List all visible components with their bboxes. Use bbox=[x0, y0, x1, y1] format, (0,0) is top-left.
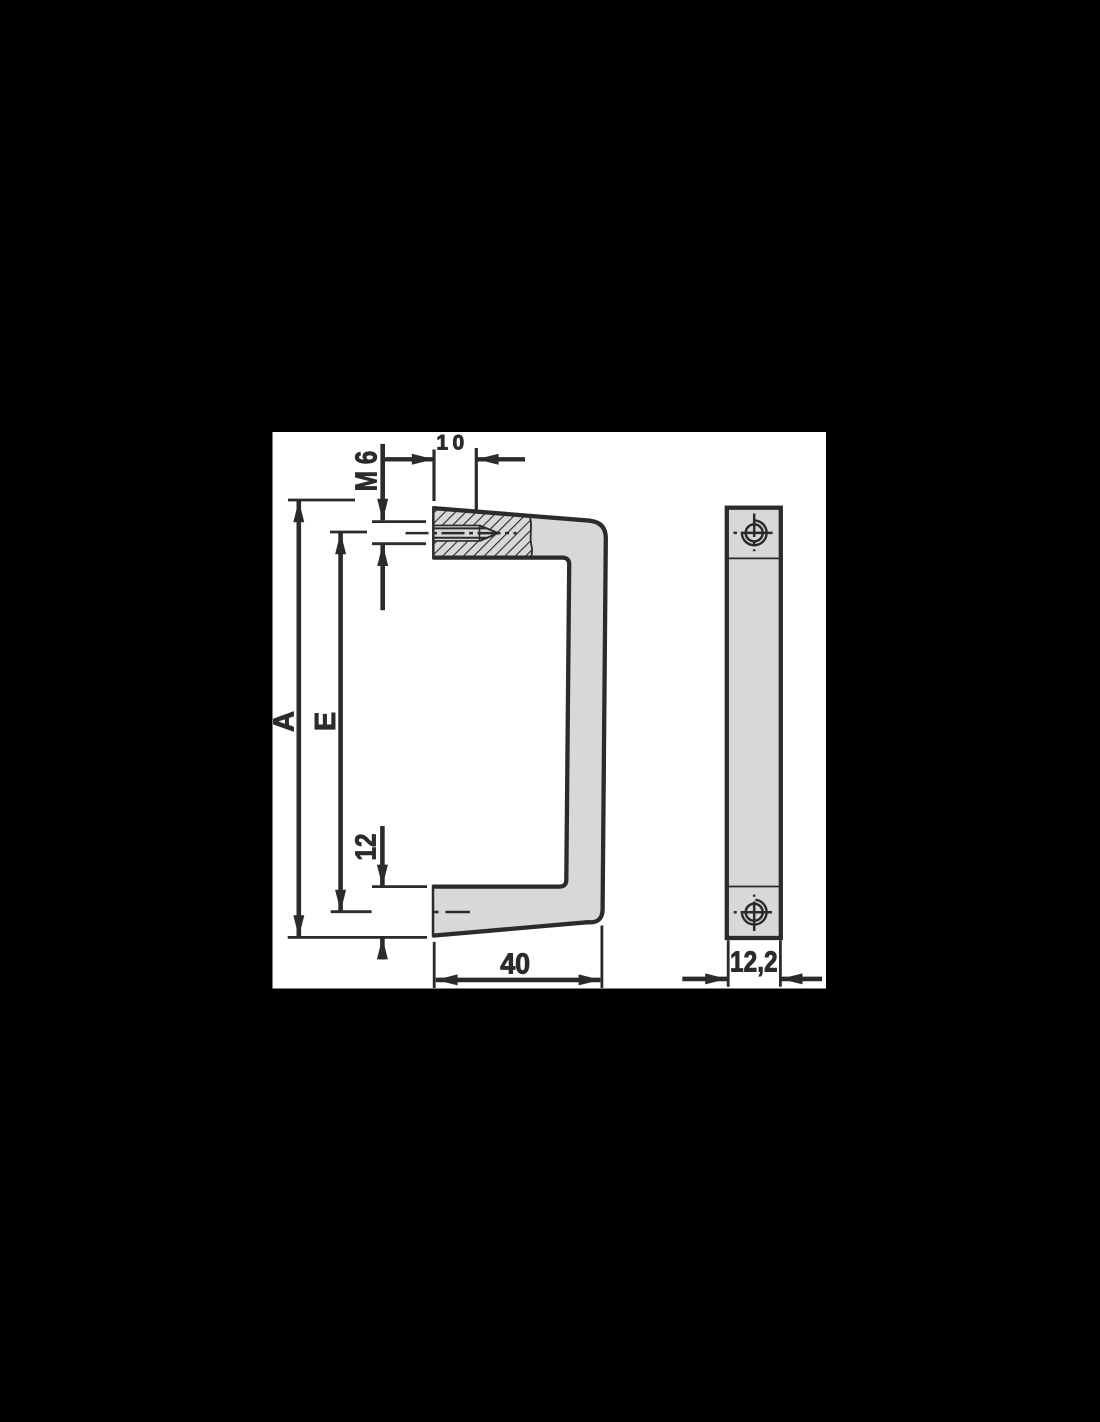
svg-text:12,2: 12,2 bbox=[730, 947, 778, 979]
svg-text:40: 40 bbox=[500, 949, 530, 981]
svg-text:10: 10 bbox=[436, 431, 468, 454]
svg-text:E: E bbox=[310, 712, 342, 731]
svg-text:12: 12 bbox=[351, 834, 383, 861]
svg-text:M 6: M 6 bbox=[349, 451, 384, 492]
svg-text:A: A bbox=[269, 711, 301, 732]
